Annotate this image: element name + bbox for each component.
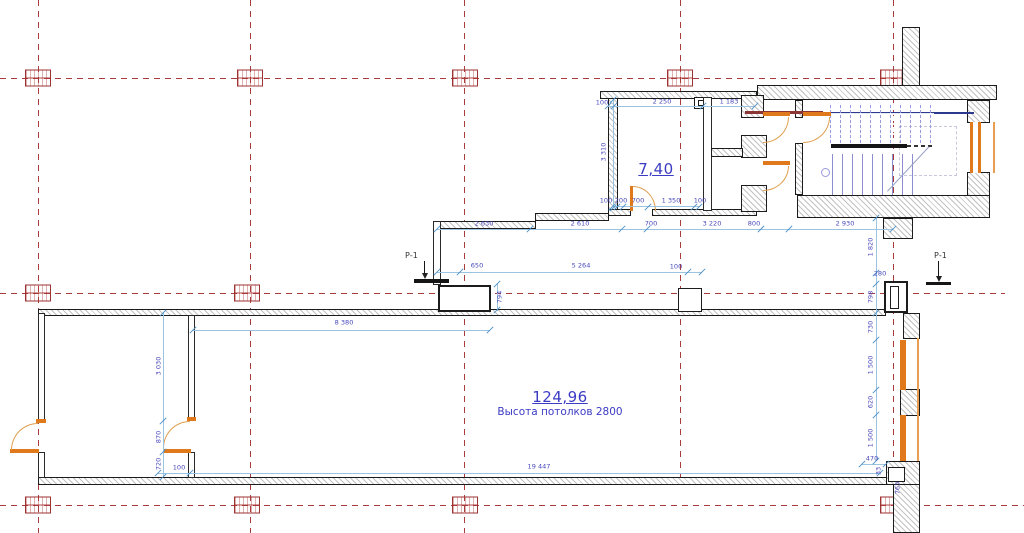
dimension-text: 470 <box>866 456 879 463</box>
grid-axis-marker <box>25 70 51 87</box>
wall-pier <box>902 27 920 86</box>
duct-shaft <box>438 285 491 312</box>
dimension-text: 19 447 <box>528 464 551 471</box>
floor-plan-drawing: 1002 2501 1833 3101002007001 3501002 630… <box>0 0 1024 533</box>
window <box>900 340 906 390</box>
dimension-text: 1 820 <box>868 238 875 257</box>
section-mark-label: Р-1 <box>405 252 418 260</box>
duct-shaft-inner <box>890 286 899 309</box>
dimension-text: 1 183 <box>720 99 739 106</box>
window <box>970 122 981 173</box>
dimension-text: 100 <box>670 264 683 271</box>
dimension-tick <box>698 268 705 275</box>
dimension-text: 3 220 <box>703 221 722 228</box>
dimension-text: 620 <box>868 396 875 409</box>
dimension-line <box>158 473 880 474</box>
duct-shaft <box>888 467 905 482</box>
dimension-text: 2 930 <box>836 221 855 228</box>
dimension-text: 100 <box>596 100 609 107</box>
window-frame <box>917 338 919 461</box>
door-swing-arc <box>803 117 830 143</box>
wall <box>38 477 889 485</box>
window <box>900 415 906 461</box>
dimension-text: 2 610 <box>571 221 590 228</box>
door-swing-arc <box>11 423 38 450</box>
dimension-line <box>437 272 702 273</box>
grid-axis-marker <box>452 497 478 514</box>
dimension-text: 2 630 <box>475 221 494 228</box>
window-frame <box>993 122 995 173</box>
dimension-text: 8 380 <box>335 320 354 327</box>
stair-start-circle <box>821 168 830 177</box>
dimension-text: 1 500 <box>868 356 875 375</box>
dimension-text: 100 <box>173 465 186 472</box>
dimension-text: 2 250 <box>653 99 672 106</box>
section-mark-bar <box>926 282 951 285</box>
dimension-text: 798 <box>868 291 875 304</box>
dimension-text: 100 <box>600 198 613 205</box>
grid-axis-marker <box>452 70 478 87</box>
dimension-text: 1 500 <box>868 429 875 448</box>
stair-cut-line-dashed <box>907 145 935 147</box>
dimension-line <box>437 229 893 230</box>
dimension-text: 3 030 <box>156 357 163 376</box>
wall <box>795 100 803 118</box>
dimension-line <box>862 464 886 465</box>
dimension-text: 800 <box>748 221 761 228</box>
grid-axis-marker <box>25 497 51 514</box>
grid-axis-marker <box>234 285 260 302</box>
grid-axis-horizontal <box>0 505 1024 506</box>
dimension-text: 720 <box>156 458 163 471</box>
wall-partition <box>38 313 45 422</box>
dimension-text: 700 <box>645 221 658 228</box>
door-leaf <box>803 112 831 116</box>
wall <box>757 85 997 100</box>
dimension-line <box>608 106 755 107</box>
door-swing-arc <box>763 117 789 143</box>
room-area-label: 7,40 <box>638 160 673 178</box>
dimension-tick <box>486 326 493 333</box>
door-leaf <box>763 112 790 116</box>
dimension-text: 700 <box>632 198 645 205</box>
stair-cut-line <box>831 144 907 148</box>
dimension-text: 730 <box>868 321 875 334</box>
grid-axis-marker <box>237 70 263 87</box>
room-area-label: 124,96 Высота потолков 2800 <box>497 388 622 418</box>
room-area-value: 124,96 <box>497 388 622 406</box>
dimension-line <box>612 206 700 207</box>
dimension-text: 870 <box>156 431 163 444</box>
grid-axis-marker <box>667 70 693 87</box>
ceiling-height-note: Высота потолков 2800 <box>497 406 622 418</box>
door-leaf <box>763 161 790 165</box>
dimension-text: 1 350 <box>662 198 681 205</box>
section-mark-label: Р-1 <box>934 252 947 260</box>
wall <box>903 313 920 339</box>
dimension-text: 280 <box>874 271 887 278</box>
dimension-line <box>613 100 614 208</box>
dimension-text: 5 264 <box>572 263 591 270</box>
dimension-text: 3 310 <box>601 143 608 162</box>
wall <box>797 195 990 218</box>
dimension-text: 794 <box>497 291 504 304</box>
door-jamb <box>36 419 46 423</box>
door-leaf <box>163 449 191 453</box>
grid-axis-marker <box>25 285 51 302</box>
dimension-text: 33 <box>876 467 883 475</box>
section-mark-bar <box>414 279 449 283</box>
wall <box>795 143 803 195</box>
grid-axis-marker <box>234 497 260 514</box>
door-swing-arc <box>763 166 789 191</box>
door-jamb <box>187 417 196 421</box>
dimension-text: 200 <box>615 198 628 205</box>
wall-partition <box>38 452 45 478</box>
stair-flight-upper <box>830 103 934 145</box>
room-area-value: 7,40 <box>638 160 673 178</box>
duct-shaft <box>678 288 702 312</box>
dimension-text: 763 <box>895 482 902 495</box>
wall <box>711 148 743 157</box>
dimension-text: 650 <box>471 263 484 270</box>
dimension-line <box>193 330 490 331</box>
dimension-text: 100 <box>694 198 707 205</box>
door-swing-arc <box>163 421 190 448</box>
